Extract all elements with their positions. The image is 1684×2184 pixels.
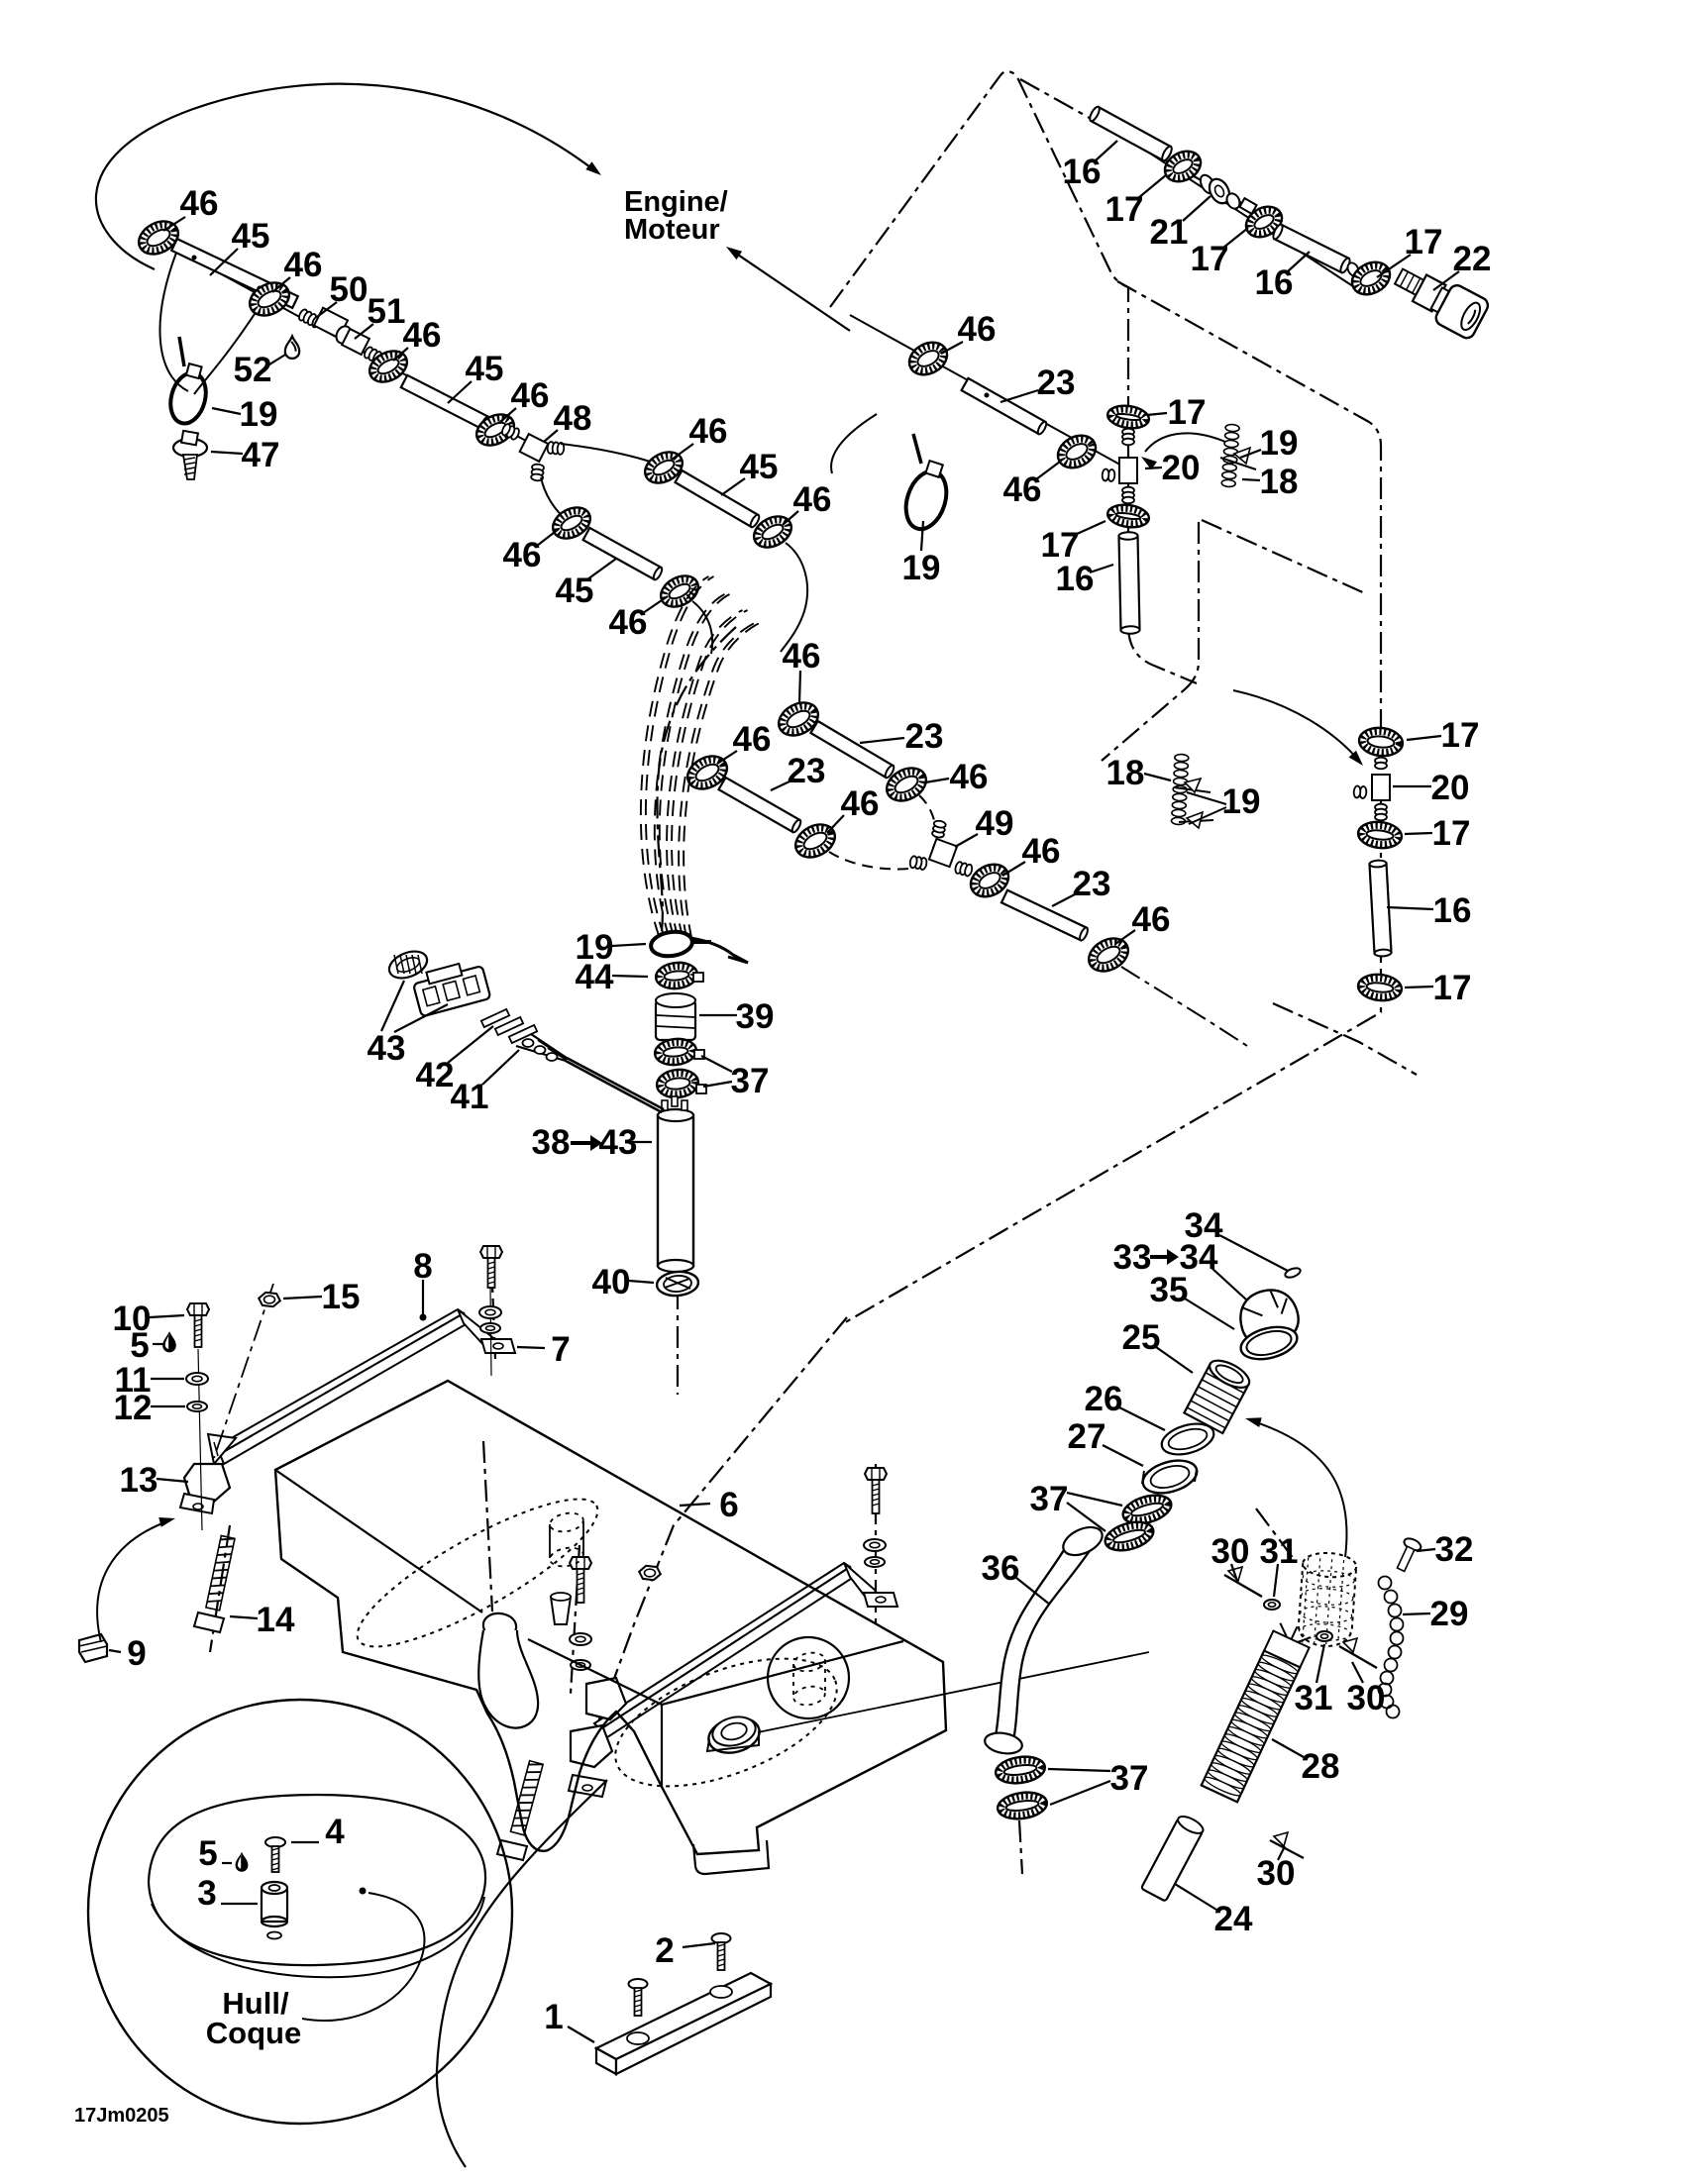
svg-text:45: 45 bbox=[556, 572, 594, 610]
svg-text:46: 46 bbox=[689, 412, 728, 451]
svg-text:14: 14 bbox=[257, 1601, 295, 1639]
svg-text:5: 5 bbox=[130, 1326, 149, 1365]
svg-text:46: 46 bbox=[403, 316, 442, 355]
svg-text:17Jm0205: 17Jm0205 bbox=[74, 2105, 169, 2127]
svg-text:46: 46 bbox=[950, 758, 989, 796]
svg-text:19: 19 bbox=[1222, 782, 1261, 821]
svg-text:19: 19 bbox=[1260, 424, 1299, 463]
svg-text:17: 17 bbox=[1432, 814, 1471, 853]
svg-text:17: 17 bbox=[1441, 716, 1480, 755]
svg-text:16: 16 bbox=[1063, 153, 1102, 191]
svg-text:7: 7 bbox=[551, 1330, 570, 1369]
svg-text:38: 38 bbox=[532, 1123, 571, 1162]
svg-text:33: 33 bbox=[1113, 1238, 1152, 1277]
svg-text:46: 46 bbox=[958, 310, 997, 349]
svg-text:9: 9 bbox=[127, 1634, 146, 1673]
svg-text:49: 49 bbox=[976, 804, 1014, 843]
svg-text:46: 46 bbox=[1003, 470, 1042, 509]
svg-text:40: 40 bbox=[592, 1263, 631, 1301]
svg-text:17: 17 bbox=[1105, 190, 1144, 229]
svg-text:23: 23 bbox=[905, 717, 944, 756]
svg-text:17: 17 bbox=[1433, 969, 1472, 1007]
svg-text:31: 31 bbox=[1260, 1532, 1299, 1571]
svg-text:46: 46 bbox=[841, 784, 880, 823]
svg-text:30: 30 bbox=[1211, 1532, 1250, 1571]
svg-text:4: 4 bbox=[325, 1813, 345, 1851]
svg-text:23: 23 bbox=[788, 752, 826, 790]
svg-text:19: 19 bbox=[902, 549, 941, 587]
svg-text:12: 12 bbox=[114, 1389, 153, 1427]
svg-text:17: 17 bbox=[1191, 240, 1229, 278]
svg-text:21: 21 bbox=[1150, 213, 1189, 252]
svg-text:46: 46 bbox=[1022, 832, 1061, 871]
svg-text:46: 46 bbox=[733, 720, 772, 759]
svg-text:5: 5 bbox=[198, 1834, 217, 1873]
svg-text:37: 37 bbox=[731, 1062, 770, 1100]
svg-text:23: 23 bbox=[1073, 865, 1111, 903]
svg-text:31: 31 bbox=[1295, 1679, 1333, 1717]
svg-text:52: 52 bbox=[234, 351, 272, 389]
svg-text:46: 46 bbox=[180, 184, 219, 223]
svg-text:46: 46 bbox=[609, 603, 648, 642]
svg-text:17: 17 bbox=[1168, 393, 1207, 432]
svg-text:37: 37 bbox=[1030, 1480, 1069, 1518]
svg-text:46: 46 bbox=[503, 536, 542, 574]
svg-text:48: 48 bbox=[554, 399, 592, 438]
svg-text:47: 47 bbox=[242, 436, 280, 474]
svg-text:2: 2 bbox=[655, 1931, 674, 1970]
svg-text:16: 16 bbox=[1433, 891, 1472, 930]
svg-text:28: 28 bbox=[1302, 1747, 1340, 1786]
svg-text:30: 30 bbox=[1257, 1854, 1296, 1893]
svg-text:Coque: Coque bbox=[206, 2016, 301, 2050]
svg-text:43: 43 bbox=[368, 1029, 406, 1068]
svg-text:16: 16 bbox=[1056, 560, 1095, 598]
svg-text:23: 23 bbox=[1037, 364, 1076, 402]
svg-text:25: 25 bbox=[1122, 1318, 1161, 1357]
svg-text:6: 6 bbox=[719, 1486, 738, 1524]
svg-text:37: 37 bbox=[1110, 1759, 1149, 1798]
svg-text:20: 20 bbox=[1431, 769, 1470, 807]
svg-text:20: 20 bbox=[1162, 449, 1201, 487]
svg-text:18: 18 bbox=[1106, 754, 1145, 792]
svg-text:27: 27 bbox=[1068, 1417, 1106, 1456]
svg-text:19: 19 bbox=[240, 395, 278, 434]
svg-text:1: 1 bbox=[544, 1998, 563, 2036]
svg-text:35: 35 bbox=[1150, 1271, 1189, 1309]
svg-text:24: 24 bbox=[1214, 1900, 1253, 1938]
svg-text:44: 44 bbox=[576, 958, 614, 996]
svg-text:3: 3 bbox=[197, 1874, 216, 1913]
svg-text:29: 29 bbox=[1430, 1595, 1469, 1633]
svg-text:16: 16 bbox=[1255, 263, 1294, 302]
svg-text:15: 15 bbox=[322, 1278, 361, 1316]
svg-text:26: 26 bbox=[1085, 1380, 1123, 1418]
svg-text:Moteur: Moteur bbox=[624, 214, 720, 246]
svg-text:36: 36 bbox=[982, 1549, 1020, 1588]
svg-text:13: 13 bbox=[120, 1461, 158, 1500]
svg-text:46: 46 bbox=[793, 480, 832, 519]
svg-text:46: 46 bbox=[783, 637, 821, 676]
svg-text:30: 30 bbox=[1347, 1679, 1386, 1717]
svg-text:45: 45 bbox=[740, 448, 779, 486]
svg-text:32: 32 bbox=[1435, 1530, 1474, 1569]
svg-text:39: 39 bbox=[736, 997, 775, 1036]
svg-text:46: 46 bbox=[511, 376, 550, 415]
svg-text:46: 46 bbox=[1132, 900, 1171, 939]
svg-text:18: 18 bbox=[1260, 463, 1299, 501]
